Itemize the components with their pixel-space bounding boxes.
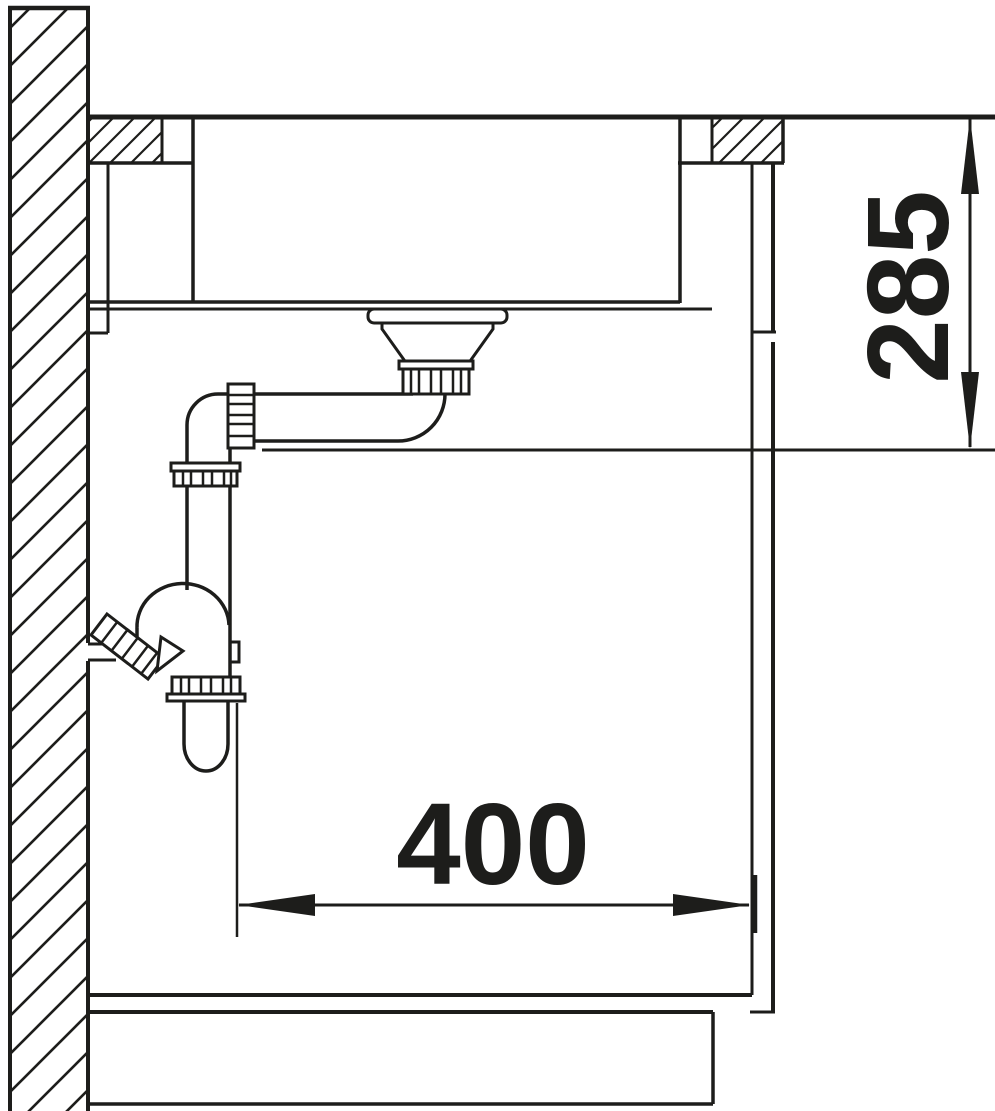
dimension-285-label: 285 [843, 190, 973, 384]
strainer-funnel [382, 323, 407, 364]
wall-hatch [10, 8, 88, 1111]
spigot-tip [157, 637, 183, 671]
elbow-compression-nut [228, 384, 254, 448]
sink-installation-diagram: 285 400 [0, 0, 995, 1111]
diagram-drawing: 285 400 [0, 0, 995, 1111]
strainer-assembly [368, 309, 507, 394]
countertop-hatch-left [90, 120, 162, 162]
cabinet-bottom-shelf [90, 995, 752, 1012]
trap-u-bend [184, 701, 228, 771]
strainer-flange [368, 309, 507, 323]
drain-elbow [187, 394, 218, 425]
sink-bowl [90, 117, 712, 333]
countertop-hatch-right [712, 120, 783, 162]
dimension-285: 285 [262, 117, 995, 450]
trap-union-nut [167, 677, 245, 701]
trap-bend-arc [137, 583, 229, 628]
countertop [88, 115, 995, 163]
pipe-nuts [167, 309, 507, 701]
dimension-400: 400 [237, 703, 755, 937]
drain-tailpipe-bend [398, 392, 445, 441]
cabinet [90, 163, 776, 1104]
pipe-compression-nut [171, 463, 240, 486]
dimension-400-arrow-right [673, 894, 750, 916]
wall-section [8, 6, 90, 1111]
drain-piping [187, 390, 445, 678]
dimension-285-arrow-up [961, 117, 979, 194]
dimension-400-label: 400 [396, 779, 590, 909]
dimension-400-arrow-left [238, 894, 315, 916]
strainer-locknut [403, 369, 469, 394]
